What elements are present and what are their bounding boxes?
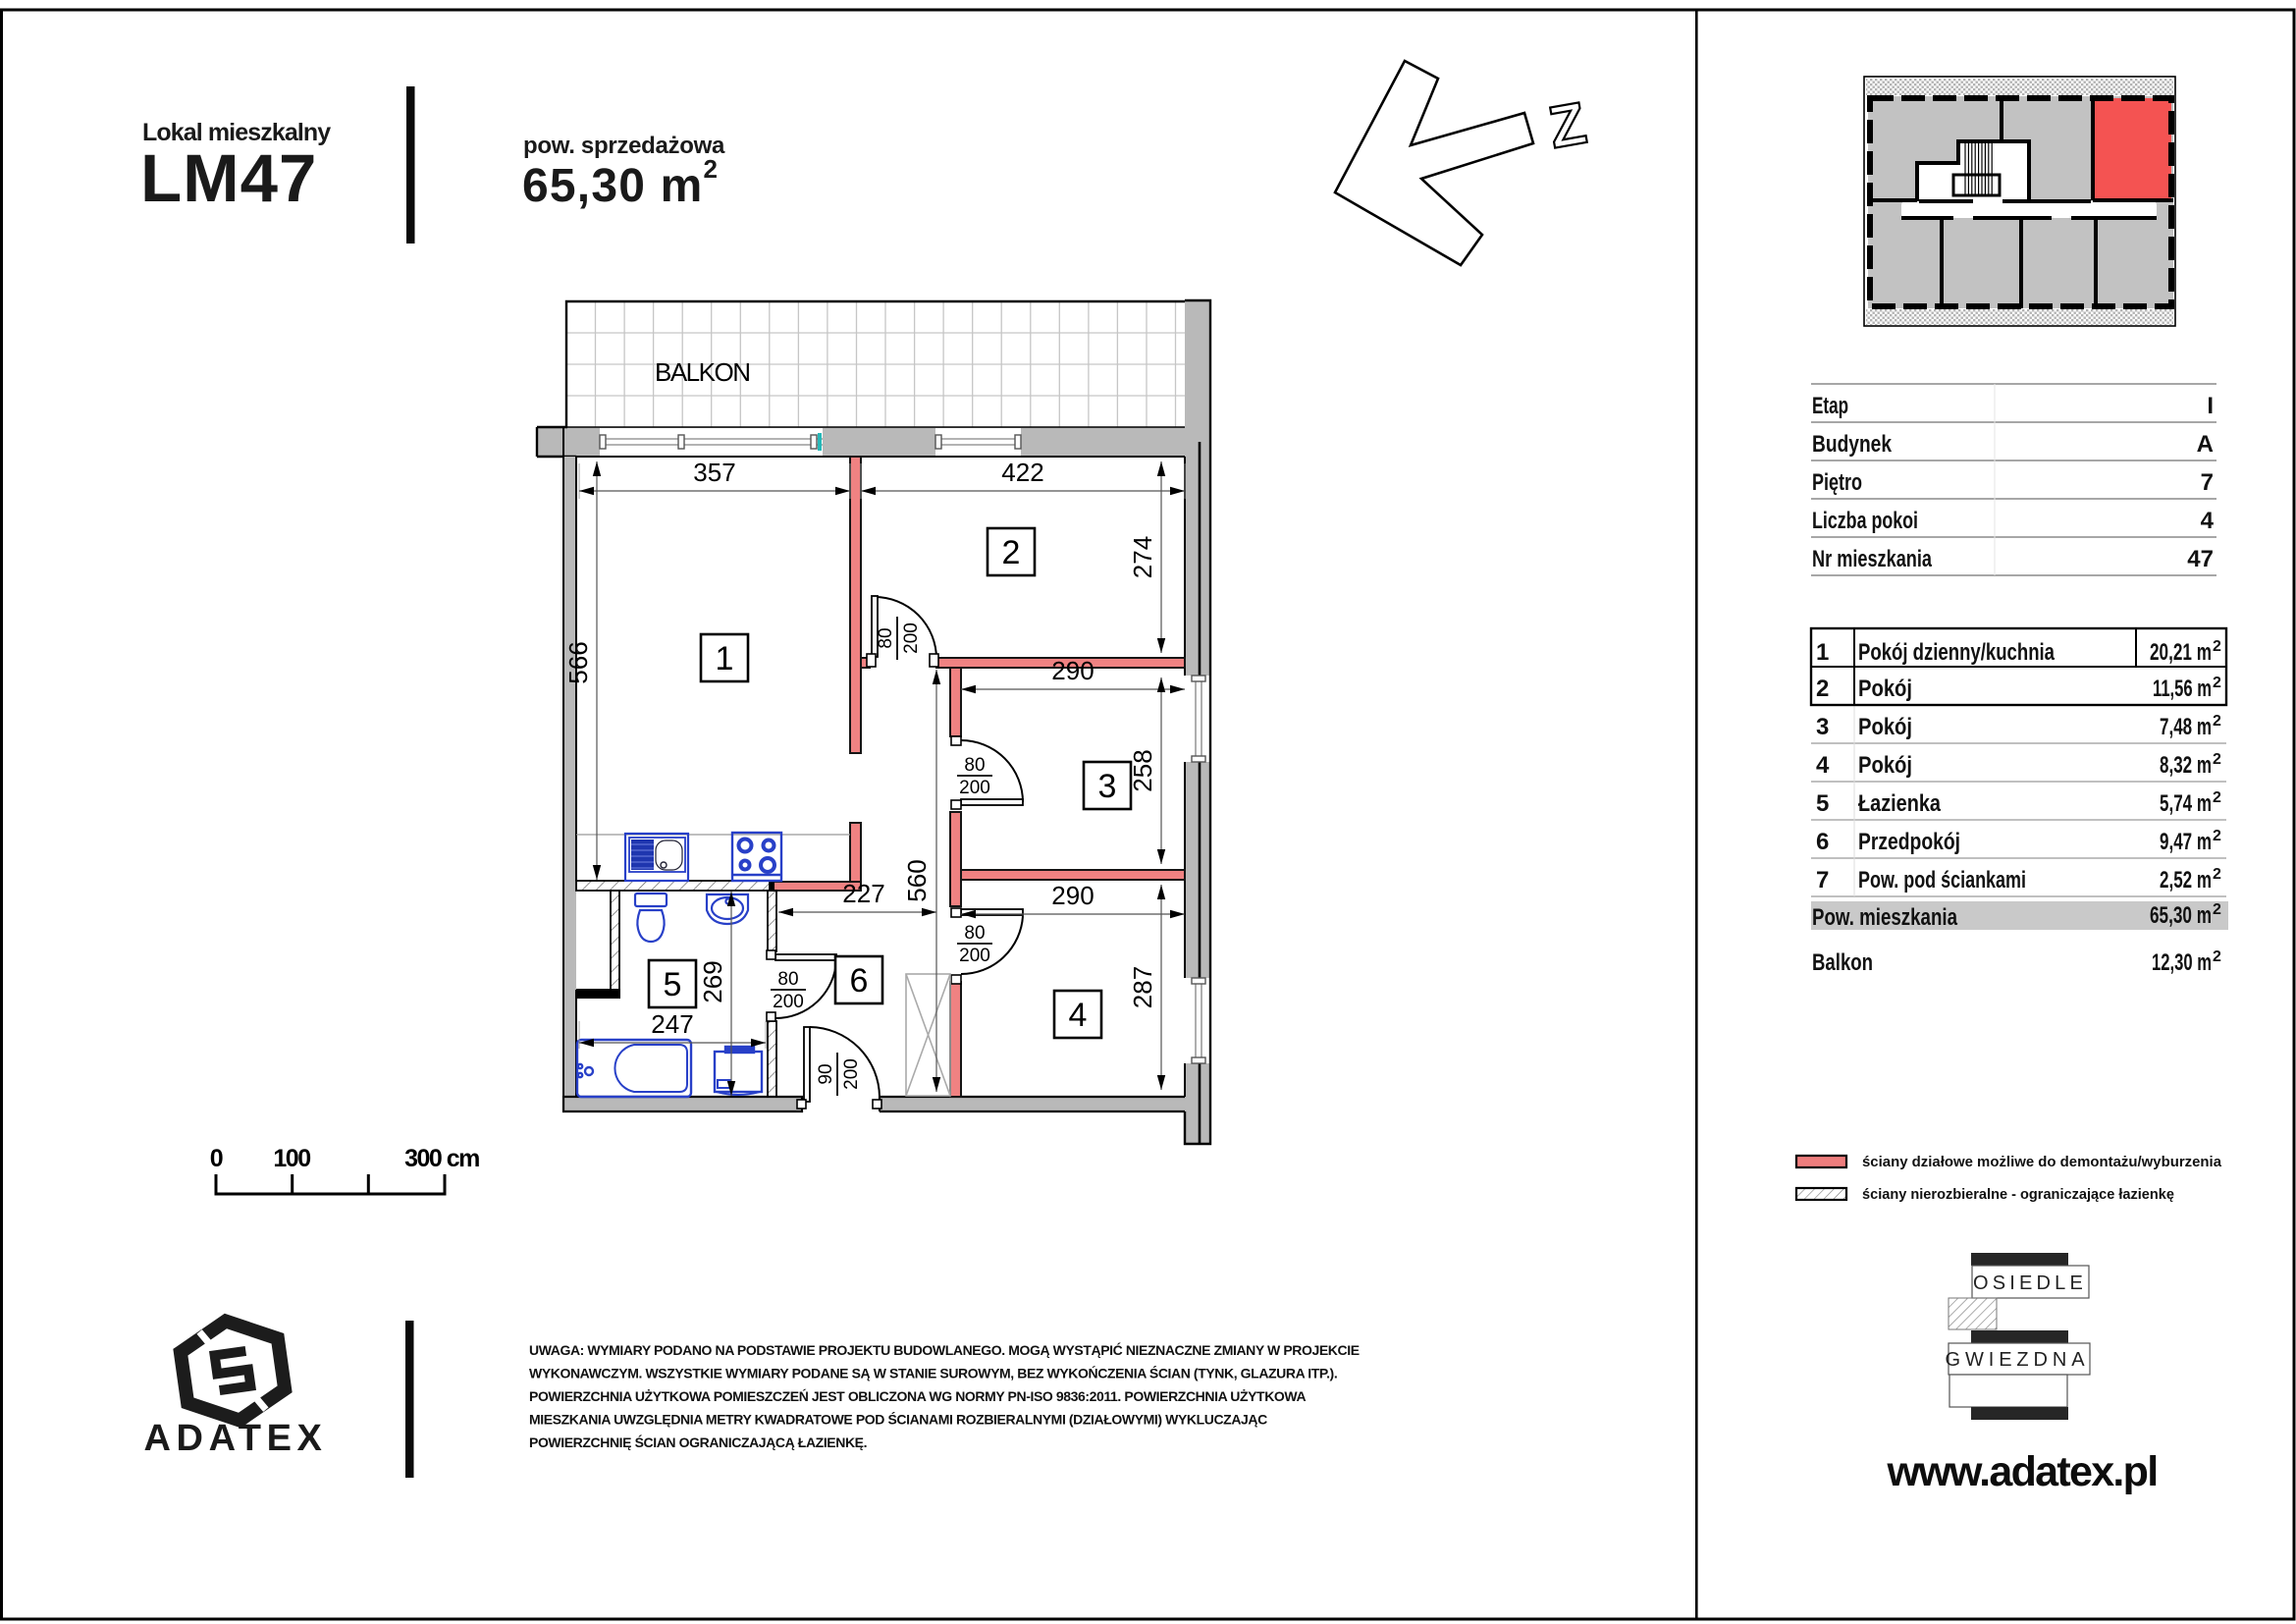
svg-text:LM47: LM47 [140,140,317,216]
svg-text:pow. sprzedażowa: pow. sprzedażowa [523,133,725,159]
svg-text:Pokój: Pokój [1858,752,1912,779]
svg-text:20,21 m: 20,21 m [2150,639,2212,666]
svg-text:Balkon: Balkon [1812,949,1873,976]
svg-text:200: 200 [959,946,990,966]
svg-text:ściany nierozbieralne - ograni: ściany nierozbieralne - ograniczające ła… [1862,1186,2174,1203]
svg-text:OSIEDLE: OSIEDLE [1973,1272,2087,1294]
svg-text:0: 0 [210,1145,223,1172]
svg-text:Łazienka: Łazienka [1858,790,1942,817]
svg-text:6: 6 [1816,829,1829,855]
svg-text:560: 560 [902,859,932,901]
svg-text:Pokój dzienny/kuchnia: Pokój dzienny/kuchnia [1858,639,2056,666]
svg-text:Pokój: Pokój [1858,676,1912,702]
svg-text:2: 2 [2213,789,2221,806]
svg-text:100: 100 [273,1145,310,1172]
svg-text:5,74 m: 5,74 m [2160,790,2212,817]
svg-text:2: 2 [2213,638,2221,655]
svg-text:274: 274 [1128,536,1157,578]
svg-text:4: 4 [2201,508,2215,534]
svg-text:Pow. pod ściankami: Pow. pod ściankami [1858,867,2026,893]
svg-text:290: 290 [1051,881,1094,910]
svg-text:GWIEZDNA: GWIEZDNA [1946,1349,2090,1371]
svg-text:4: 4 [1816,752,1830,779]
svg-text:Etap: Etap [1812,393,1848,419]
svg-text:2: 2 [2213,866,2221,883]
svg-text:290: 290 [1051,656,1094,685]
svg-text:65,30 m2: 65,30 m2 [522,154,719,212]
svg-text:7,48 m: 7,48 m [2160,714,2212,740]
svg-text:6: 6 [850,962,869,1000]
svg-text:90: 90 [816,1063,836,1084]
svg-text:3: 3 [1098,768,1117,805]
svg-text:2: 2 [1816,676,1829,702]
svg-text:Pokój: Pokój [1858,714,1912,740]
svg-text:BALKON: BALKON [655,357,750,387]
svg-text:287: 287 [1128,966,1157,1008]
svg-text:1: 1 [1816,639,1829,666]
svg-text:5: 5 [664,966,682,1003]
svg-text:2,52 m: 2,52 m [2160,867,2212,893]
svg-text:7: 7 [1816,867,1829,893]
svg-text:A: A [2197,431,2214,458]
svg-text:80: 80 [964,923,985,944]
svg-text:UWAGA: WYMIARY PODANO NA PODST: UWAGA: WYMIARY PODANO NA PODSTAWIE PROJE… [529,1341,1360,1358]
svg-text:2: 2 [2213,901,2221,918]
svg-text:422: 422 [1001,458,1043,487]
svg-text:Budynek: Budynek [1812,431,1893,458]
svg-text:2: 2 [1002,534,1021,571]
svg-text:200: 200 [841,1058,862,1090]
svg-text:200: 200 [773,992,804,1012]
svg-text:4: 4 [1069,997,1088,1034]
svg-text:Nr mieszkania: Nr mieszkania [1812,546,1932,572]
svg-text:9,47 m: 9,47 m [2160,829,2212,855]
svg-text:357: 357 [693,458,735,487]
svg-text:2: 2 [2213,751,2221,768]
svg-text:Pow. mieszkania: Pow. mieszkania [1812,904,1958,931]
svg-text:200: 200 [901,623,922,654]
svg-text:2: 2 [2213,948,2221,965]
svg-text:12,30 m: 12,30 m [2152,949,2212,976]
svg-text:566: 566 [563,641,593,683]
svg-text:247: 247 [651,1009,693,1039]
svg-text:258: 258 [1128,749,1157,791]
svg-text:MIESZKANIA UWZGLĘDNIA METRY KW: MIESZKANIA UWZGLĘDNIA METRY KWADRATOWE P… [529,1411,1267,1428]
svg-text:7: 7 [2201,469,2214,496]
svg-text:80: 80 [777,969,798,990]
svg-text:1: 1 [716,640,734,677]
svg-text:POWIERZCHNIĘ ŚCIAN OGRANICZAJĄ: POWIERZCHNIĘ ŚCIAN OGRANICZAJĄCĄ ŁAZIENK… [529,1434,867,1450]
svg-text:300 cm: 300 cm [404,1145,479,1172]
svg-text:POWIERZCHNIA UŻYTKOWA POMIESZC: POWIERZCHNIA UŻYTKOWA POMIESZCZEŃ JEST O… [529,1388,1306,1404]
svg-text:3: 3 [1816,714,1829,740]
svg-text:2: 2 [2213,713,2221,730]
svg-text:www.adatex.pl: www.adatex.pl [1887,1448,2158,1495]
svg-text:ściany działowe możliwe do dem: ściany działowe możliwe do demontażu/wyb… [1862,1154,2222,1170]
svg-text:WYKONAWCZYM. WSZYSTKIE WYMIARY: WYKONAWCZYM. WSZYSTKIE WYMIARY PODANE SĄ… [529,1365,1337,1381]
svg-text:Przedpokój: Przedpokój [1858,829,1960,855]
svg-text:8,32 m: 8,32 m [2160,752,2212,779]
svg-text:269: 269 [698,960,727,1002]
svg-text:Liczba pokoi: Liczba pokoi [1812,508,1918,534]
svg-text:80: 80 [876,627,896,648]
svg-text:2: 2 [2213,828,2221,844]
svg-text:I: I [2207,393,2214,419]
svg-text:Piętro: Piętro [1812,469,1862,496]
svg-text:5: 5 [1816,790,1829,817]
svg-text:65,30 m: 65,30 m [2150,902,2212,929]
svg-text:47: 47 [2187,546,2214,572]
svg-text:200: 200 [959,778,990,798]
svg-text:227: 227 [842,879,884,908]
svg-text:80: 80 [964,755,985,776]
svg-text:11,56 m: 11,56 m [2153,676,2212,702]
svg-text:2: 2 [2213,675,2221,691]
svg-text:ADATEX: ADATEX [143,1418,327,1459]
